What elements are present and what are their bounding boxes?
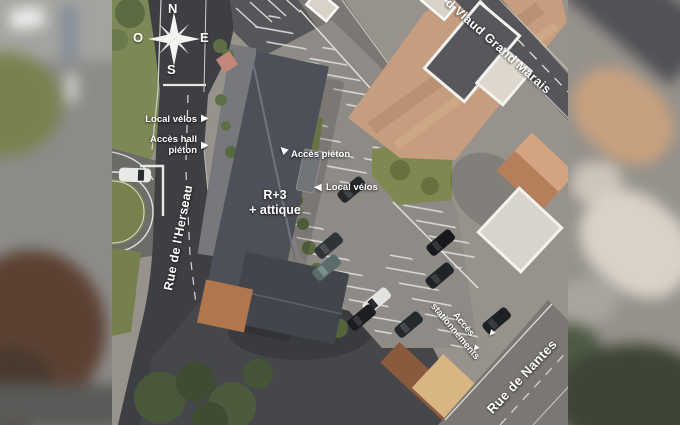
- arrow-left-icon: ◀: [314, 183, 322, 193]
- label-local-velos-west: Local vélos: [121, 114, 197, 125]
- compass-north: N: [168, 1, 177, 16]
- compass-west: O: [133, 30, 143, 45]
- arrow-right-icon: ▶: [201, 114, 209, 124]
- label-acces-hall-pieton: Accès hall piéton: [119, 134, 197, 156]
- label-acces-pieton: Accès piéton: [291, 149, 350, 160]
- blur-vignette-right: [568, 0, 680, 425]
- compass-east: E: [200, 30, 209, 45]
- blur-vignette-left: [0, 0, 112, 425]
- building-attic: + attique: [242, 203, 308, 218]
- building-storeys: R+3: [242, 188, 308, 203]
- aerial-site-plan: N O E S Local vélos ▶ Accès hall piéton …: [0, 0, 680, 425]
- white-car: [119, 167, 151, 182]
- compass-south: S: [167, 62, 176, 77]
- label-local-velos-east: Local vélos: [326, 182, 378, 193]
- arrow-right-icon: ▶: [201, 141, 209, 151]
- label-building-height: R+3 + attique: [242, 188, 308, 218]
